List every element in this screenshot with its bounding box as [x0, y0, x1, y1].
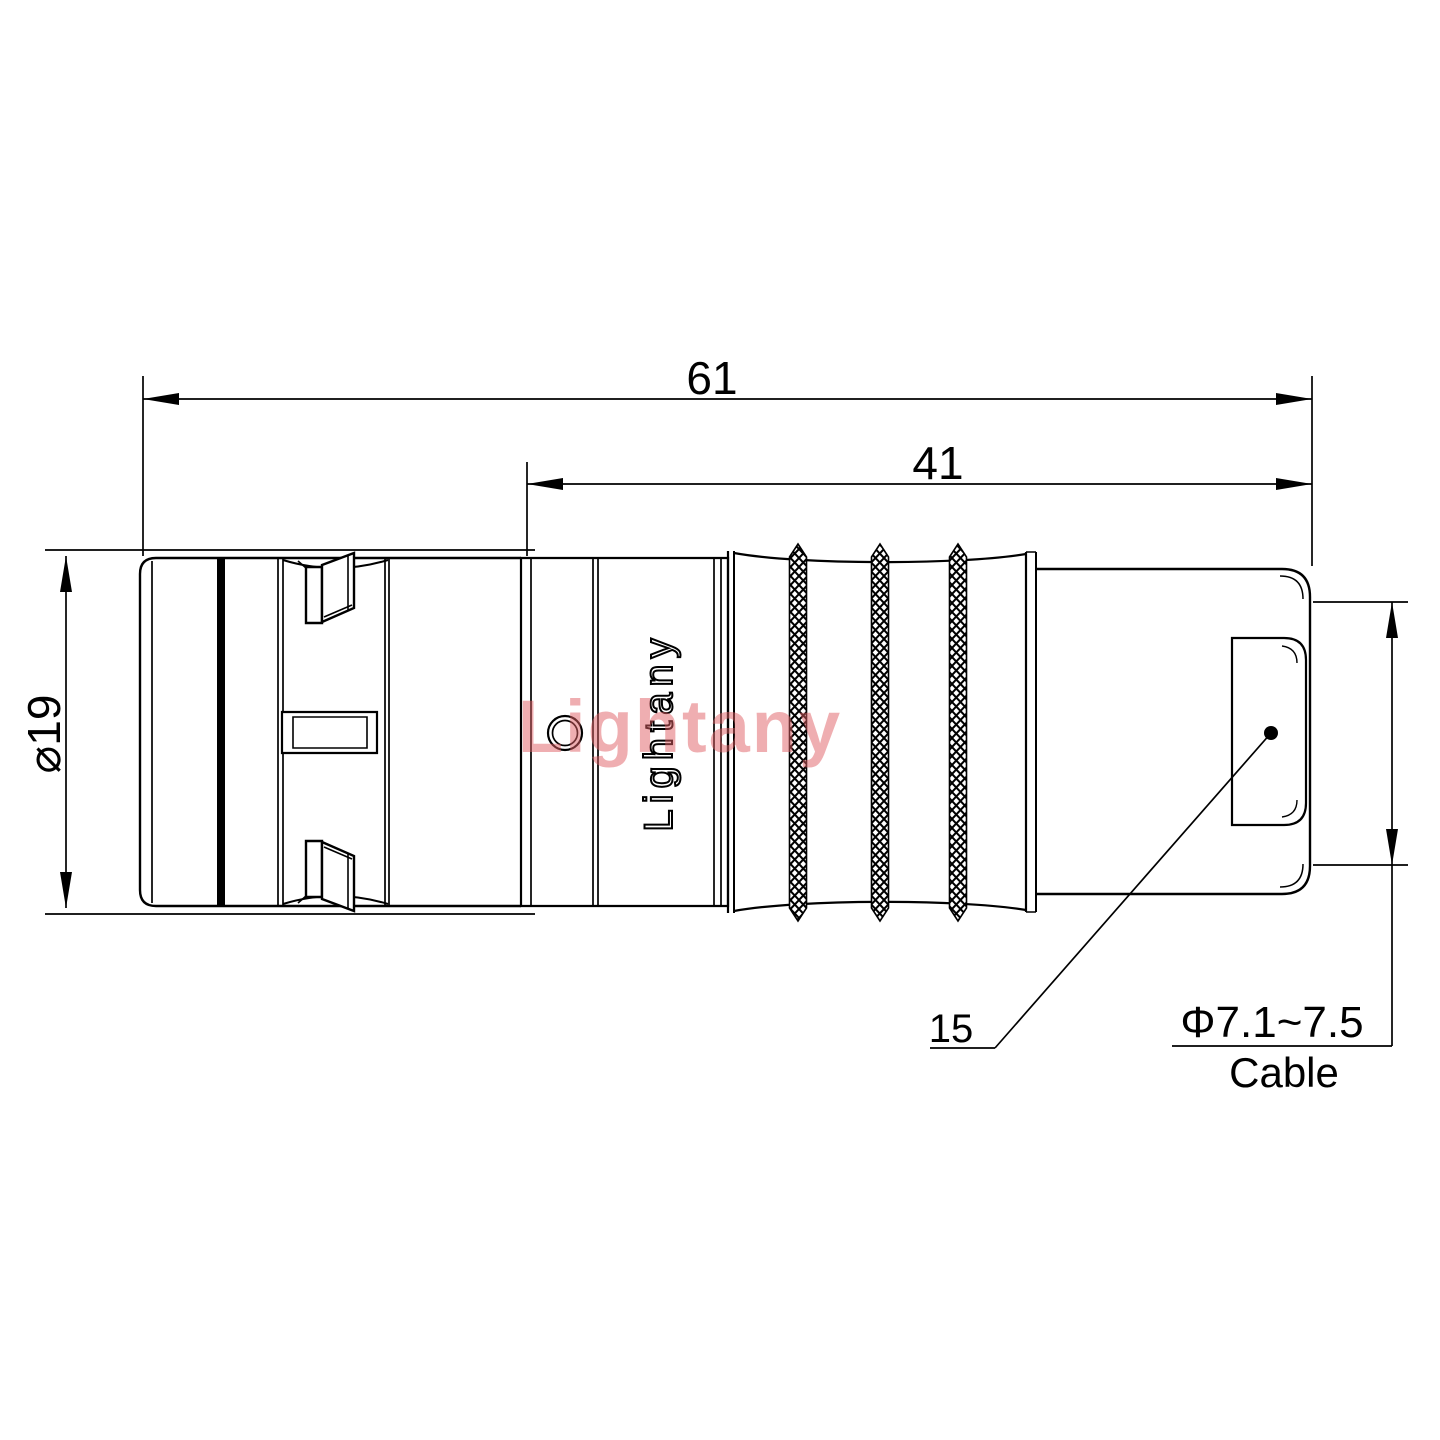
brand-watermark: Lightany [518, 685, 842, 768]
latch-tab-bottom-bar [306, 841, 322, 897]
front-black-ring [217, 558, 225, 906]
cable-bush-line-top [1282, 646, 1297, 663]
section-line-b [385, 559, 389, 905]
dim19-arrow-top [60, 556, 72, 592]
cable-label-text: Cable [1229, 1049, 1339, 1096]
boot-corner-line-top [1280, 576, 1303, 599]
latch-tab-top-bar [306, 567, 322, 623]
cable-bush-line-bottom [1282, 800, 1297, 817]
dimension-rear-length: 41 [527, 437, 1312, 556]
knurl-band-2 [872, 544, 889, 921]
dim61-value: 61 [686, 352, 737, 404]
dim61-arrow-left [143, 393, 179, 405]
dimension-cable: Φ7.1~7.5 Cable [1172, 602, 1408, 1096]
knurl-right-caps [1026, 552, 1036, 912]
connector-drawing-canvas: 61 41 ⌀19 Φ7.1~7.5 Cabl [0, 0, 1440, 1440]
dim41-arrow-left [527, 478, 563, 490]
dimension-diameter: ⌀19 [18, 550, 535, 914]
boot-corner-line-bottom [1280, 864, 1303, 887]
cable-dim-arrow-bottom [1386, 829, 1398, 865]
latch-tab-bottom [298, 841, 354, 911]
dimension-total-length: 61 [143, 352, 1312, 566]
dim19-value: ⌀19 [18, 695, 70, 774]
knurl-band-3 [950, 544, 967, 921]
dim61-arrow-right [1276, 393, 1312, 405]
latch-window-outer [282, 712, 377, 753]
dim41-value: 41 [912, 437, 963, 489]
dim41-arrow-right [1276, 478, 1312, 490]
cable-dim-arrow-top [1386, 602, 1398, 638]
latch-tab-top [298, 553, 354, 623]
dim19-arrow-bottom [60, 872, 72, 908]
drawing-page: 61 41 ⌀19 Φ7.1~7.5 Cabl [0, 0, 1440, 1440]
cable-spec-text: Φ7.1~7.5 [1180, 998, 1363, 1047]
dim15-value: 15 [929, 1007, 974, 1051]
